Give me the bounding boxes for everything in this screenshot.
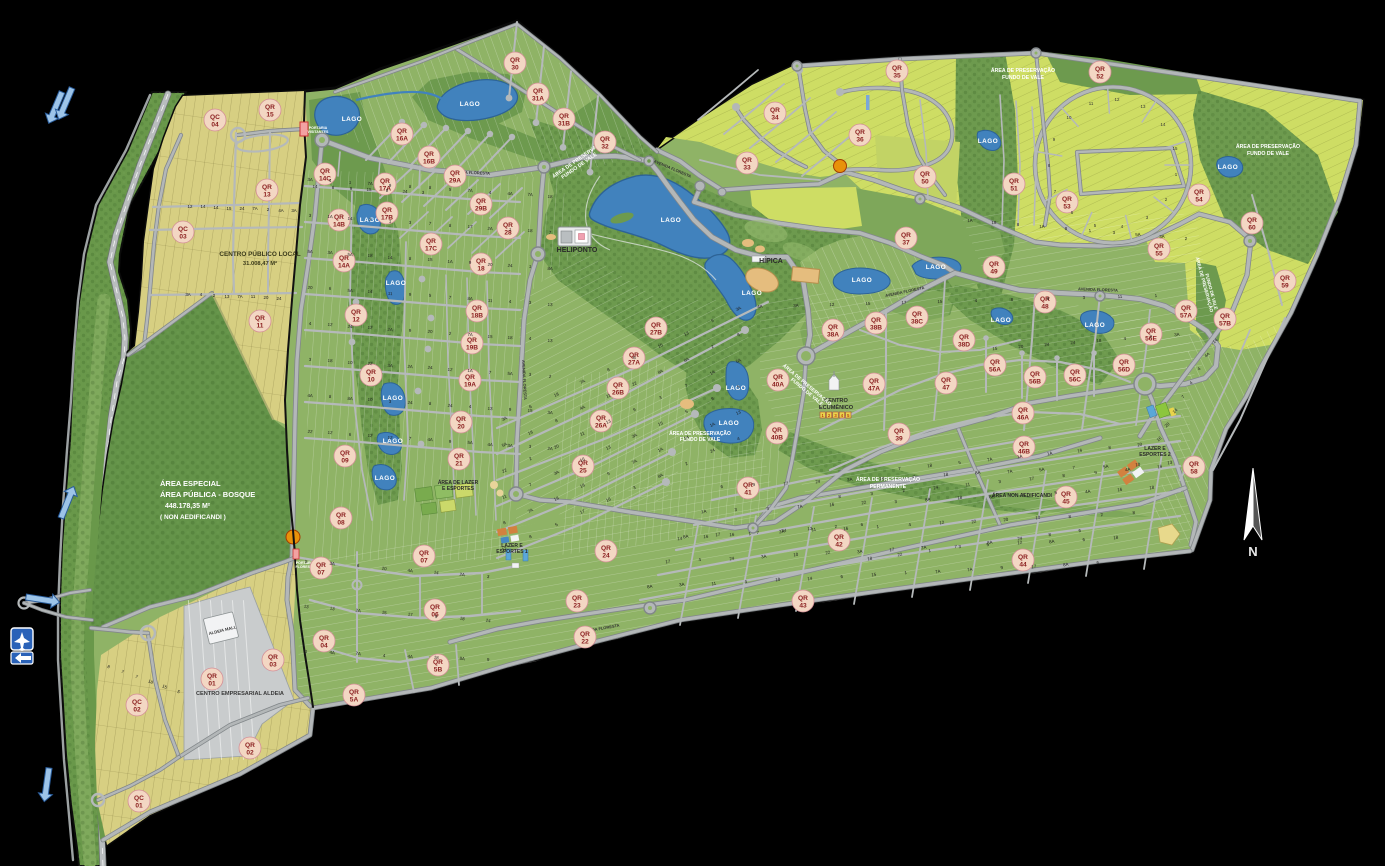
svg-text:14: 14	[201, 204, 206, 209]
svg-text:QR: QR	[1018, 407, 1028, 414]
svg-text:QR: QR	[1154, 243, 1164, 250]
svg-text:2A: 2A	[547, 446, 553, 451]
svg-text:QR: QR	[476, 258, 486, 265]
svg-text:FUNDO DE VALE: FUNDO DE VALE	[1247, 151, 1290, 157]
svg-text:QR: QR	[920, 171, 930, 178]
svg-text:14B: 14B	[333, 222, 345, 229]
svg-text:4A: 4A	[427, 437, 433, 442]
svg-text:13: 13	[547, 302, 553, 307]
svg-text:15: 15	[1173, 146, 1178, 151]
svg-text:QR: QR	[742, 157, 752, 164]
svg-text:QR: QR	[454, 453, 464, 460]
svg-text:39: 39	[895, 436, 903, 443]
svg-text:31A: 31A	[532, 96, 544, 103]
svg-text:ÁREA DE PRESERVAÇÃO: ÁREA DE PRESERVAÇÃO	[669, 430, 731, 437]
svg-text:2A: 2A	[459, 572, 465, 578]
svg-text:7A: 7A	[527, 192, 533, 197]
svg-text:QR: QR	[426, 238, 436, 245]
svg-text:QR: QR	[572, 595, 582, 602]
svg-text:26B: 26B	[612, 390, 624, 397]
svg-text:QR: QR	[613, 382, 623, 389]
svg-text:16A: 16A	[396, 136, 408, 143]
svg-text:27B: 27B	[650, 330, 662, 337]
svg-text:7A: 7A	[237, 294, 242, 299]
svg-text:5A: 5A	[350, 697, 359, 704]
svg-text:12: 12	[327, 322, 333, 327]
svg-text:8A: 8A	[925, 497, 931, 503]
svg-text:18: 18	[327, 358, 333, 363]
svg-text:4A: 4A	[407, 568, 413, 574]
svg-text:QR: QR	[245, 742, 255, 749]
svg-text:8A: 8A	[347, 396, 353, 401]
svg-text:09: 09	[341, 458, 349, 465]
svg-text:19A: 19A	[464, 382, 476, 389]
svg-text:LAGO: LAGO	[460, 101, 480, 108]
svg-text:17B: 17B	[381, 215, 393, 222]
svg-text:QR: QR	[476, 198, 486, 205]
svg-text:18B: 18B	[471, 313, 483, 320]
svg-text:QR: QR	[320, 168, 330, 175]
svg-text:N: N	[1248, 544, 1257, 559]
svg-text:QR: QR	[340, 450, 350, 457]
svg-text:21: 21	[455, 461, 463, 468]
svg-text:15: 15	[227, 206, 232, 211]
svg-text:2A: 2A	[847, 477, 853, 483]
svg-text:4A: 4A	[307, 393, 313, 398]
svg-text:1A: 1A	[467, 368, 473, 373]
svg-text:QR: QR	[1181, 305, 1191, 312]
svg-text:7A: 7A	[797, 504, 803, 510]
svg-text:7A: 7A	[467, 332, 473, 337]
svg-text:12: 12	[387, 435, 393, 440]
svg-text:19B: 19B	[466, 345, 478, 352]
svg-text:QR: QR	[334, 214, 344, 221]
svg-text:35: 35	[893, 73, 901, 80]
svg-text:2A: 2A	[921, 545, 927, 551]
svg-text:QR: QR	[268, 654, 278, 661]
svg-text:8A: 8A	[467, 296, 473, 301]
svg-text:4A: 4A	[407, 654, 413, 660]
svg-text:QR: QR	[901, 232, 911, 239]
svg-text:15: 15	[865, 301, 871, 306]
svg-text:1A: 1A	[701, 509, 707, 515]
svg-text:59: 59	[1281, 283, 1289, 290]
svg-text:24: 24	[403, 189, 409, 194]
svg-text:QR: QR	[828, 324, 838, 331]
svg-text:18: 18	[991, 220, 997, 225]
svg-text:LAGO: LAGO	[926, 264, 946, 271]
svg-text:QR: QR	[336, 512, 346, 519]
svg-text:13: 13	[263, 192, 271, 199]
svg-text:QR: QR	[959, 334, 969, 341]
svg-text:QR: QR	[1070, 369, 1080, 376]
svg-text:11: 11	[251, 294, 256, 299]
svg-text:LAGO: LAGO	[383, 395, 403, 402]
svg-text:24: 24	[277, 296, 282, 301]
svg-text:QR: QR	[349, 689, 359, 696]
svg-text:QR: QR	[989, 261, 999, 268]
svg-text:LAGO: LAGO	[342, 116, 362, 123]
svg-text:QR: QR	[600, 136, 610, 143]
svg-text:7A: 7A	[1007, 469, 1013, 475]
svg-text:12: 12	[352, 317, 360, 324]
svg-text:3A: 3A	[857, 549, 863, 555]
svg-text:E ESPORTES: E ESPORTES	[442, 486, 475, 492]
svg-text:8A: 8A	[989, 494, 995, 500]
svg-text:QR: QR	[510, 57, 520, 64]
svg-text:QR: QR	[912, 311, 922, 318]
svg-text:QR: QR	[1220, 313, 1230, 320]
svg-text:QR: QR	[472, 305, 482, 312]
svg-text:23: 23	[573, 603, 581, 610]
svg-text:LAGO: LAGO	[742, 290, 762, 297]
svg-text:58: 58	[1190, 469, 1198, 476]
svg-text:14: 14	[313, 184, 319, 189]
svg-text:18: 18	[367, 253, 373, 258]
svg-text:2A: 2A	[355, 608, 361, 614]
svg-text:14A: 14A	[338, 263, 350, 270]
svg-text:29B: 29B	[475, 206, 487, 213]
svg-text:QR: QR	[255, 315, 265, 322]
svg-text:LAGO: LAGO	[375, 475, 395, 482]
svg-text:41: 41	[744, 490, 752, 497]
svg-text:11: 11	[257, 323, 264, 330]
svg-text:5A: 5A	[467, 440, 473, 445]
svg-text:13: 13	[225, 294, 230, 299]
svg-text:14: 14	[367, 289, 373, 294]
svg-text:04: 04	[211, 122, 219, 129]
svg-text:1A: 1A	[967, 218, 973, 223]
svg-text:5A: 5A	[507, 371, 513, 376]
svg-text:QR: QR	[772, 427, 782, 434]
svg-text:56D: 56D	[1118, 367, 1130, 374]
svg-text:QR: QR	[773, 374, 783, 381]
svg-text:2A: 2A	[487, 226, 493, 231]
svg-text:10: 10	[1067, 115, 1072, 120]
svg-text:QR: QR	[207, 673, 217, 680]
svg-text:QR: QR	[941, 377, 951, 384]
svg-text:3A: 3A	[1174, 332, 1180, 337]
svg-text:QR: QR	[601, 545, 611, 552]
svg-text:QR: QR	[855, 129, 865, 136]
svg-text:03: 03	[179, 234, 187, 241]
svg-text:44: 44	[1019, 562, 1027, 569]
svg-text:38C: 38C	[911, 319, 923, 326]
svg-text:11: 11	[1089, 101, 1094, 106]
svg-text:20: 20	[457, 424, 465, 431]
svg-text:QR: QR	[1018, 554, 1028, 561]
svg-text:QR: QR	[424, 151, 434, 158]
svg-text:QR: QR	[465, 374, 475, 381]
svg-text:1A: 1A	[1039, 224, 1045, 229]
svg-text:57B: 57B	[1219, 321, 1231, 328]
svg-text:8A: 8A	[1049, 539, 1055, 545]
svg-text:CENTRO EMPRESARIAL ALDEIA: CENTRO EMPRESARIAL ALDEIA	[196, 691, 284, 697]
svg-text:ÁREA DE PRESERVAÇÃO: ÁREA DE PRESERVAÇÃO	[856, 476, 920, 483]
svg-text:448.178,35 M²: 448.178,35 M²	[165, 503, 211, 510]
svg-text:31.008,47 M²: 31.008,47 M²	[243, 260, 277, 267]
svg-text:8A: 8A	[987, 540, 993, 546]
svg-text:49: 49	[990, 269, 998, 276]
svg-text:4A: 4A	[278, 208, 283, 213]
svg-text:10: 10	[367, 377, 375, 384]
svg-text:8A: 8A	[647, 584, 653, 590]
svg-text:40B: 40B	[771, 435, 783, 442]
svg-text:12: 12	[1115, 97, 1120, 102]
svg-text:QR: QR	[316, 562, 326, 569]
svg-text:12: 12	[447, 367, 453, 372]
svg-text:38A: 38A	[827, 332, 839, 339]
svg-text:LAGO: LAGO	[386, 280, 406, 287]
svg-text:24: 24	[427, 365, 433, 370]
svg-text:LAGO: LAGO	[383, 438, 403, 445]
svg-text:17: 17	[467, 224, 473, 229]
svg-text:QR: QR	[1194, 189, 1204, 196]
svg-text:12: 12	[327, 430, 333, 435]
svg-text:QR: QR	[419, 550, 429, 557]
svg-text:QR: QR	[319, 635, 329, 642]
svg-text:QR: QR	[397, 128, 407, 135]
svg-text:QC: QC	[132, 699, 142, 706]
svg-text:CENTRO PÚBLICO LOCAL: CENTRO PÚBLICO LOCAL	[219, 249, 300, 258]
svg-text:02: 02	[246, 750, 254, 757]
svg-text:7A: 7A	[355, 651, 361, 657]
svg-text:40A: 40A	[772, 382, 784, 389]
svg-text:LAGO: LAGO	[1085, 322, 1105, 329]
svg-text:57A: 57A	[1180, 313, 1192, 320]
svg-text:QR: QR	[265, 104, 275, 111]
svg-text:QR: QR	[651, 322, 661, 329]
svg-text:3A: 3A	[679, 582, 685, 588]
svg-text:LAGO: LAGO	[991, 317, 1011, 324]
svg-text:46A: 46A	[1017, 415, 1029, 422]
svg-text:20: 20	[487, 262, 493, 267]
svg-text:26A: 26A	[595, 423, 607, 430]
svg-text:31B: 31B	[558, 121, 570, 128]
svg-text:1A: 1A	[327, 214, 333, 219]
svg-text:LAGO: LAGO	[852, 277, 872, 284]
svg-text:QR: QR	[382, 207, 392, 214]
svg-text:QR: QR	[834, 534, 844, 541]
svg-text:QR: QR	[1009, 178, 1019, 185]
svg-text:QR: QR	[1030, 371, 1040, 378]
svg-text:8A: 8A	[683, 534, 689, 540]
svg-text:34: 34	[771, 115, 779, 122]
svg-text:QR: QR	[871, 317, 881, 324]
svg-text:43: 43	[799, 603, 807, 610]
svg-text:20: 20	[264, 295, 269, 300]
svg-text:3A: 3A	[307, 177, 313, 182]
svg-text:24: 24	[240, 206, 245, 211]
svg-text:13: 13	[547, 338, 553, 343]
svg-text:3A: 3A	[761, 554, 767, 560]
svg-text:29A: 29A	[449, 178, 461, 185]
svg-text:36: 36	[856, 137, 864, 144]
svg-text:QR: QR	[533, 88, 543, 95]
svg-text:56C: 56C	[1069, 377, 1081, 384]
svg-text:12: 12	[829, 302, 835, 307]
svg-text:( NON AEDIFICANDI ): ( NON AEDIFICANDI )	[160, 514, 226, 521]
svg-text:14: 14	[214, 205, 219, 210]
svg-text:47: 47	[942, 385, 950, 392]
svg-text:12: 12	[367, 325, 373, 330]
svg-text:14: 14	[347, 216, 353, 221]
svg-text:3A: 3A	[185, 292, 190, 297]
svg-text:ESPORTES 2: ESPORTES 2	[1139, 452, 1171, 458]
svg-text:QR: QR	[990, 359, 1000, 366]
svg-text:LAGO: LAGO	[978, 138, 998, 145]
svg-text:HÍPICA: HÍPICA	[759, 256, 783, 265]
svg-text:LAGO: LAGO	[719, 420, 739, 427]
svg-text:14: 14	[387, 255, 393, 260]
svg-text:18: 18	[507, 335, 513, 340]
svg-text:FUNDO DE VALE: FUNDO DE VALE	[1002, 75, 1045, 81]
svg-text:24: 24	[447, 403, 453, 408]
svg-text:11: 11	[1118, 294, 1123, 299]
svg-text:5A: 5A	[347, 288, 353, 293]
svg-text:4A: 4A	[507, 191, 513, 196]
svg-text:QR: QR	[1019, 441, 1029, 448]
svg-text:7A: 7A	[467, 188, 473, 193]
svg-text:10: 10	[367, 397, 373, 402]
svg-text:56A: 56A	[989, 367, 1001, 374]
svg-text:30: 30	[511, 65, 519, 72]
svg-text:38D: 38D	[958, 342, 970, 349]
svg-text:QR: QR	[262, 184, 272, 191]
svg-text:42: 42	[835, 542, 843, 549]
svg-text:20: 20	[307, 285, 313, 290]
svg-text:8A: 8A	[459, 656, 465, 662]
svg-text:8A: 8A	[975, 470, 981, 476]
svg-text:52: 52	[1096, 74, 1104, 81]
svg-text:16B: 16B	[423, 159, 435, 166]
svg-text:12: 12	[188, 204, 193, 209]
svg-text:12: 12	[367, 433, 373, 438]
svg-text:24: 24	[407, 400, 413, 405]
svg-text:7A: 7A	[967, 567, 973, 573]
svg-text:47A: 47A	[868, 386, 880, 393]
svg-text:ÁREA DE PRESERVAÇÃO: ÁREA DE PRESERVAÇÃO	[991, 67, 1055, 74]
svg-text:2A: 2A	[387, 327, 393, 332]
svg-text:LAGO: LAGO	[661, 217, 681, 224]
svg-text:3A: 3A	[387, 363, 393, 368]
svg-text:24: 24	[507, 263, 513, 268]
svg-text:15: 15	[427, 257, 433, 262]
svg-text:1A: 1A	[447, 259, 453, 264]
svg-text:ECUMÊNICO: ECUMÊNICO	[819, 403, 854, 411]
svg-text:17C: 17C	[425, 246, 437, 253]
svg-text:QR: QR	[869, 378, 879, 385]
svg-text:54: 54	[1195, 197, 1203, 204]
svg-text:QR: QR	[351, 309, 361, 316]
svg-text:15: 15	[266, 112, 274, 119]
svg-text:QR: QR	[1280, 275, 1290, 282]
svg-text:24: 24	[347, 324, 353, 329]
svg-text:QR: QR	[456, 416, 466, 423]
svg-text:56B: 56B	[1029, 379, 1041, 386]
svg-text:18: 18	[547, 194, 553, 199]
svg-text:13: 13	[1141, 104, 1146, 109]
svg-text:3A: 3A	[329, 561, 335, 567]
svg-text:01: 01	[208, 681, 216, 688]
svg-text:3A: 3A	[793, 303, 799, 308]
svg-text:07: 07	[317, 570, 325, 577]
svg-text:5A: 5A	[347, 252, 353, 257]
svg-text:45: 45	[1062, 499, 1070, 506]
svg-text:15: 15	[487, 334, 493, 339]
svg-text:ESPORTES 1: ESPORTES 1	[496, 549, 528, 555]
svg-text:51: 51	[1010, 186, 1018, 193]
svg-text:QR: QR	[1119, 359, 1129, 366]
svg-text:QR: QR	[467, 337, 477, 344]
svg-text:ÁREA DE PRESERVAÇÃO: ÁREA DE PRESERVAÇÃO	[1236, 143, 1300, 150]
svg-text:QR: QR	[430, 604, 440, 611]
svg-text:VISITANTES: VISITANTES	[308, 130, 330, 134]
svg-text:17: 17	[901, 300, 907, 305]
svg-text:QC: QC	[210, 114, 220, 121]
svg-text:2A: 2A	[407, 364, 413, 369]
svg-text:QR: QR	[894, 428, 904, 435]
svg-text:4A: 4A	[1085, 489, 1091, 495]
svg-text:QR: QR	[798, 595, 808, 602]
svg-text:QR: QR	[1061, 491, 1071, 498]
svg-text:ÁREA DE LAZER: ÁREA DE LAZER	[438, 479, 479, 486]
svg-text:27A: 27A	[628, 360, 640, 367]
svg-text:15: 15	[367, 187, 373, 192]
svg-text:20: 20	[427, 329, 433, 334]
svg-text:5A: 5A	[307, 249, 313, 254]
svg-text:7A: 7A	[935, 569, 941, 575]
svg-text:50: 50	[921, 179, 929, 186]
svg-text:QR: QR	[1095, 66, 1105, 73]
svg-text:QR: QR	[892, 65, 902, 72]
svg-text:33: 33	[743, 165, 751, 172]
svg-text:QR: QR	[1189, 461, 1199, 468]
svg-text:4A: 4A	[487, 442, 493, 447]
svg-text:QR: QR	[450, 170, 460, 177]
svg-text:QR: QR	[770, 107, 780, 114]
svg-text:5A: 5A	[1103, 464, 1109, 470]
svg-text:13: 13	[487, 406, 493, 411]
svg-text:4A: 4A	[329, 650, 335, 656]
svg-text:QR: QR	[1062, 196, 1072, 203]
svg-text:04: 04	[320, 643, 328, 650]
svg-text:07: 07	[420, 558, 428, 565]
svg-text:3A: 3A	[291, 208, 296, 213]
svg-text:QR: QR	[580, 631, 590, 638]
svg-text:32: 32	[601, 144, 609, 151]
svg-text:3A: 3A	[1159, 234, 1165, 239]
svg-text:37: 37	[902, 240, 910, 247]
svg-text:03: 03	[269, 662, 277, 669]
svg-text:24: 24	[602, 553, 610, 560]
svg-text:8A: 8A	[1063, 562, 1069, 568]
svg-text:5A: 5A	[1135, 232, 1141, 237]
svg-text:ÁREA ESPECIAL: ÁREA ESPECIAL	[160, 479, 221, 488]
svg-text:ÁREA PÚBLICA - BOSQUE: ÁREA PÚBLICA - BOSQUE	[160, 490, 255, 499]
svg-text:01: 01	[135, 803, 143, 810]
svg-text:22: 22	[367, 361, 373, 366]
svg-text:18: 18	[527, 228, 533, 233]
svg-text:QR: QR	[559, 113, 569, 120]
svg-text:3A: 3A	[327, 250, 333, 255]
svg-text:QR: QR	[366, 369, 376, 376]
svg-text:8A: 8A	[547, 266, 553, 271]
svg-text:22: 22	[307, 429, 313, 434]
svg-text:QC: QC	[134, 795, 144, 802]
svg-text:5B: 5B	[434, 667, 443, 674]
svg-text:4A: 4A	[757, 304, 763, 309]
